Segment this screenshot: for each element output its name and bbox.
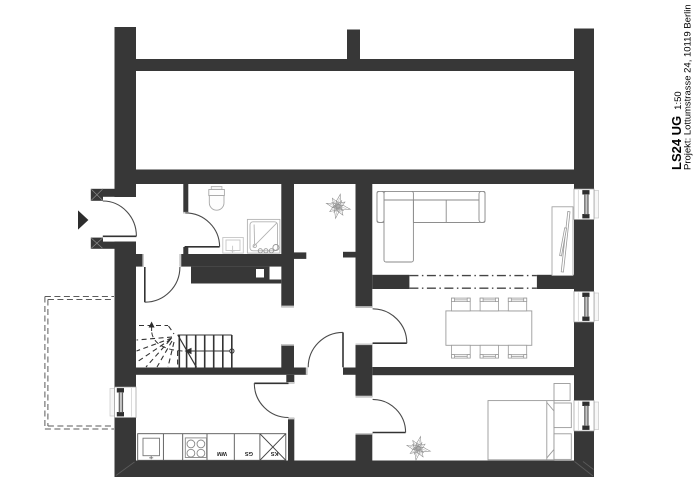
- svg-text:Projekt: Lottumstrasse 24, 101: Projekt: Lottumstrasse 24, 10119 Berlin: [683, 4, 694, 170]
- svg-text:KS: KS: [270, 450, 278, 456]
- svg-text:GS: GS: [245, 450, 253, 456]
- svg-text:WM: WM: [217, 450, 227, 456]
